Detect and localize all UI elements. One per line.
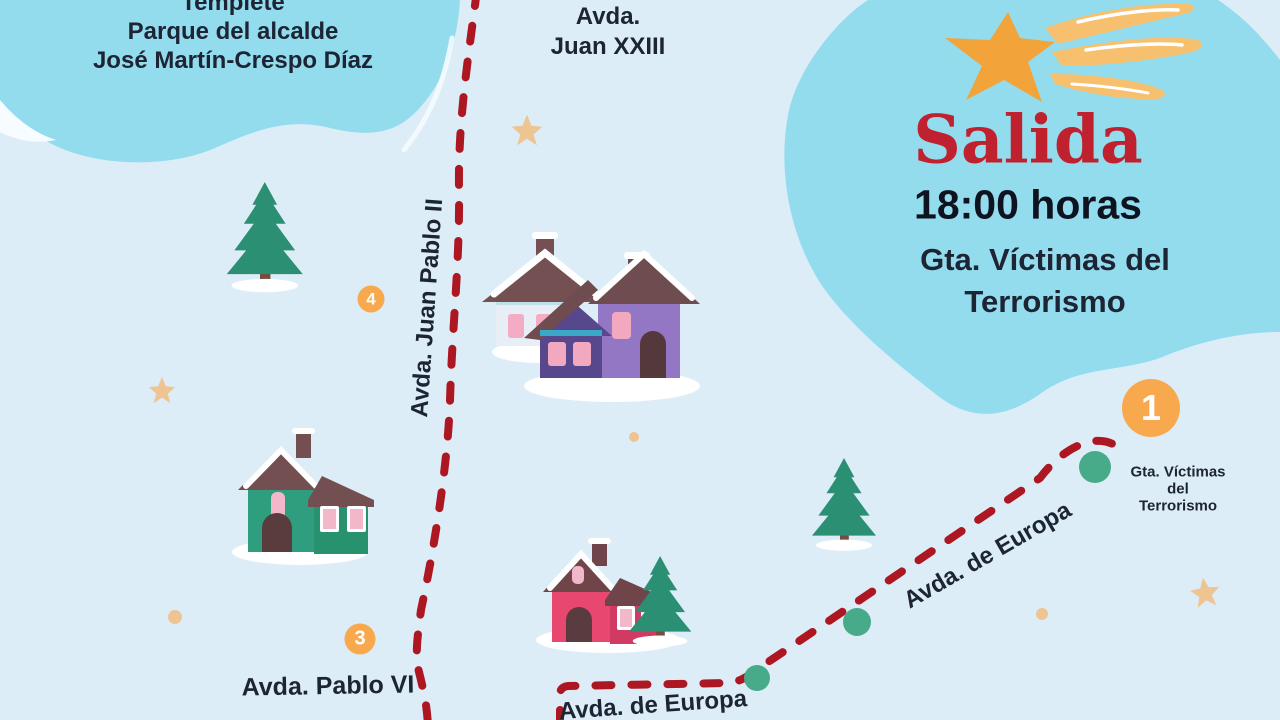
pine-tree-icon bbox=[812, 458, 876, 551]
house-icon-purple bbox=[482, 232, 700, 402]
start-time: 18:00 horas bbox=[914, 180, 1142, 229]
pine-tree-icon bbox=[227, 182, 303, 292]
dot-sparkle bbox=[1036, 608, 1048, 620]
dot-sparkle bbox=[629, 432, 639, 442]
park-label-line3: José Martín-Crespo Díaz bbox=[93, 46, 373, 75]
roundabout-label-line1: Gta. Víctimas bbox=[1130, 464, 1225, 481]
route-marker-1: 1 bbox=[1122, 379, 1180, 437]
star-icon bbox=[512, 115, 543, 146]
street-label-pablo-vi: Avda. Pablo VI bbox=[241, 669, 414, 702]
star-icon bbox=[1188, 575, 1221, 608]
house-icon-green bbox=[232, 428, 374, 565]
christmas-route-map: Templete Parque del alcalde José Martín-… bbox=[0, 0, 1280, 720]
house-icon-pink bbox=[536, 538, 691, 653]
roundabout-label-line3: Terrorismo bbox=[1130, 498, 1225, 515]
street-juan-xxiii-line1: Avda. bbox=[551, 2, 666, 32]
start-title: Salida bbox=[913, 100, 1143, 179]
route-marker-3: 3 bbox=[345, 624, 376, 655]
route-stop-dot bbox=[744, 665, 770, 691]
street-label-juan-xxiii: Avda. Juan XXIII bbox=[551, 2, 666, 62]
route-stop-dot bbox=[843, 608, 871, 636]
start-location-line1: Gta. Víctimas del bbox=[920, 239, 1170, 281]
roundabout-label-line2: del bbox=[1130, 481, 1225, 498]
route-stop-dot bbox=[1079, 451, 1111, 483]
park-label: Templete Parque del alcalde José Martín-… bbox=[93, 0, 373, 75]
dot-sparkle bbox=[168, 610, 182, 624]
street-juan-xxiii-line2: Juan XXIII bbox=[551, 32, 666, 62]
start-location: Gta. Víctimas del Terrorismo bbox=[920, 239, 1170, 323]
roundabout-label: Gta. Víctimas del Terrorismo bbox=[1130, 464, 1225, 515]
route-marker-4: 4 bbox=[358, 286, 385, 313]
star-icon bbox=[149, 377, 176, 404]
start-location-line2: Terrorismo bbox=[920, 281, 1170, 323]
park-label-line1: Templete bbox=[93, 0, 373, 17]
park-label-line2: Parque del alcalde bbox=[93, 17, 373, 46]
